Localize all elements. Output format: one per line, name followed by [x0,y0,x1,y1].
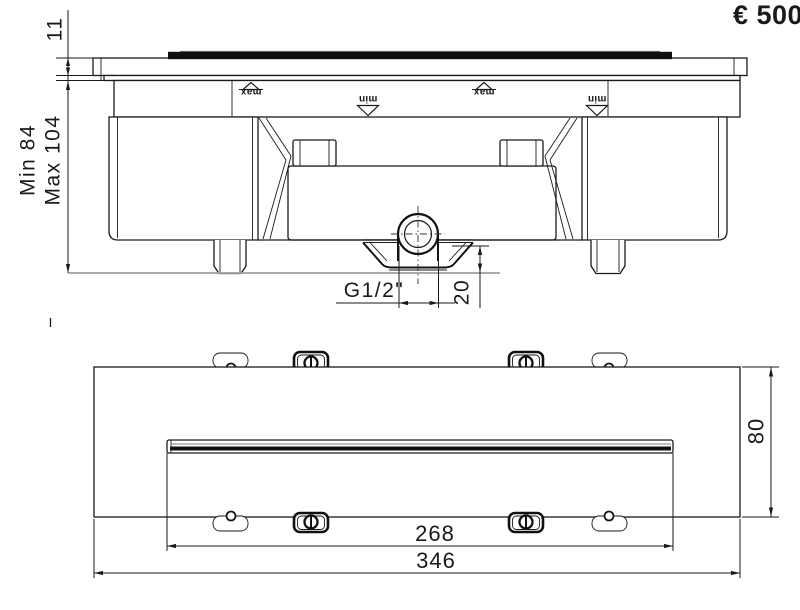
drawing-canvas: max max min min [0,0,800,610]
max-label: max [473,86,494,97]
dimension-plate-thickness: 11 [43,10,93,80]
chamber-boss-right [500,140,543,166]
section-view: max max min min [16,10,747,308]
waterfall-slot [167,440,673,453]
leg-left [214,240,246,274]
max-label: max [240,86,261,97]
min-label: min [588,93,607,104]
dim-overall-length-label: 346 [416,548,456,573]
leg-right [591,240,625,274]
dim-depth-min-label: Min 84 [16,124,39,196]
dim-outlet-depth-label: 20 [450,279,473,305]
dim-connection-label: G1/2" [344,279,404,302]
dim-body-depth-label: 80 [744,418,769,444]
chamber-boss-left [293,140,336,166]
dim-slot-length-label: 268 [415,521,455,546]
screw-tab [294,513,328,532]
brace-left [259,118,291,239]
price-label: € 500 [733,0,800,30]
plan-view: 80 268 346 [51,318,780,578]
tab-hole [227,512,236,521]
dim-depth-max-label: Max 104 [41,114,64,205]
dimension-body-depth: 80 [742,367,779,517]
min-label: min [359,93,378,104]
tab-hole [605,512,614,521]
technical-drawing-page: max max min min [0,0,800,610]
dim-plate-thickness-label: 11 [43,17,66,42]
dimension-outlet-depth: 20 [450,246,489,308]
screw-tab [509,513,543,532]
spout-slot-bar [168,52,672,59]
